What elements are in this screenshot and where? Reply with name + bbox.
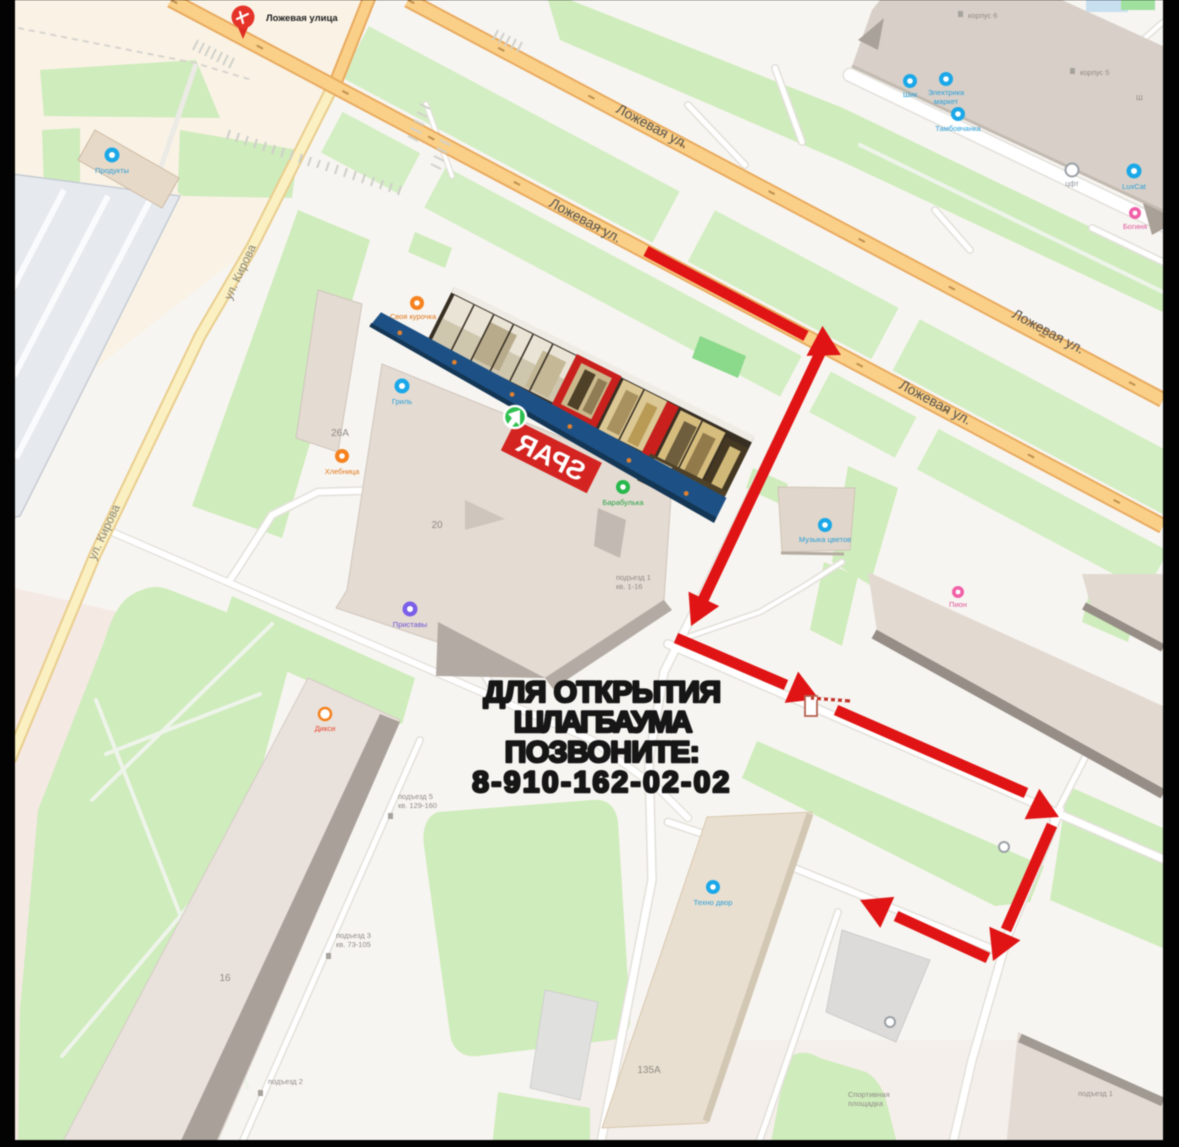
- svg-text:8-910-162-02-02: 8-910-162-02-02: [472, 766, 732, 799]
- svg-text:135А: 135А: [637, 1065, 661, 1076]
- svg-text:Спортивная: Спортивная: [848, 1090, 890, 1099]
- svg-text:Гриль: Гриль: [392, 397, 412, 406]
- svg-text:Богиня: Богиня: [1123, 222, 1147, 231]
- svg-text:кв. 73-105: кв. 73-105: [336, 940, 371, 949]
- svg-text:16: 16: [219, 973, 231, 984]
- svg-text:Пион: Пион: [949, 600, 967, 609]
- svg-text:подъезд 2: подъезд 2: [268, 1077, 303, 1086]
- svg-text:Ш: Ш: [1136, 93, 1143, 102]
- svg-text:корпус 5: корпус 5: [1080, 68, 1109, 77]
- svg-text:Приставы: Приставы: [393, 620, 427, 629]
- svg-text:корпус 6: корпус 6: [968, 11, 997, 20]
- svg-text:кв. 1-16: кв. 1-16: [616, 582, 642, 591]
- svg-text:Барабулька: Барабулька: [602, 498, 644, 507]
- svg-text:LuxCat: LuxCat: [1122, 182, 1147, 191]
- svg-text:маркет: маркет: [934, 97, 959, 106]
- svg-text:Музыка цветов: Музыка цветов: [799, 535, 851, 544]
- svg-text:Хлебница: Хлебница: [325, 467, 360, 476]
- svg-text:Техно двор: Техно двор: [694, 898, 733, 907]
- svg-text:Продукты: Продукты: [95, 166, 129, 175]
- svg-text:Шик: Шик: [903, 90, 918, 99]
- svg-text:Дикси: Дикси: [315, 724, 336, 733]
- svg-text:20: 20: [431, 520, 443, 531]
- svg-text:цфт: цфт: [1065, 179, 1079, 188]
- svg-text:Тамбовчанка: Тамбовчанка: [935, 124, 981, 133]
- svg-text:площадка: площадка: [848, 1099, 884, 1108]
- svg-text:Своя курочка: Своя курочка: [390, 312, 437, 321]
- svg-text:26А: 26А: [331, 428, 349, 439]
- svg-text:ПОЗВОНИТЕ:: ПОЗВОНИТЕ:: [505, 736, 700, 769]
- svg-text:ДЛЯ ОТКРЫТИЯ: ДЛЯ ОТКРЫТИЯ: [483, 676, 720, 709]
- svg-text:подъезд 5: подъезд 5: [398, 792, 433, 801]
- svg-text:Электрика: Электрика: [928, 88, 965, 97]
- svg-text:Ложевая улица: Ложевая улица: [266, 13, 338, 24]
- svg-text:подъезд 1: подъезд 1: [616, 573, 651, 582]
- svg-text:кв. 129-160: кв. 129-160: [398, 801, 437, 810]
- svg-text:подъезд 3: подъезд 3: [336, 931, 371, 940]
- svg-text:ШЛАГБАУМА: ШЛАГБАУМА: [514, 706, 692, 739]
- svg-text:подъезд 1: подъезд 1: [1078, 1089, 1113, 1098]
